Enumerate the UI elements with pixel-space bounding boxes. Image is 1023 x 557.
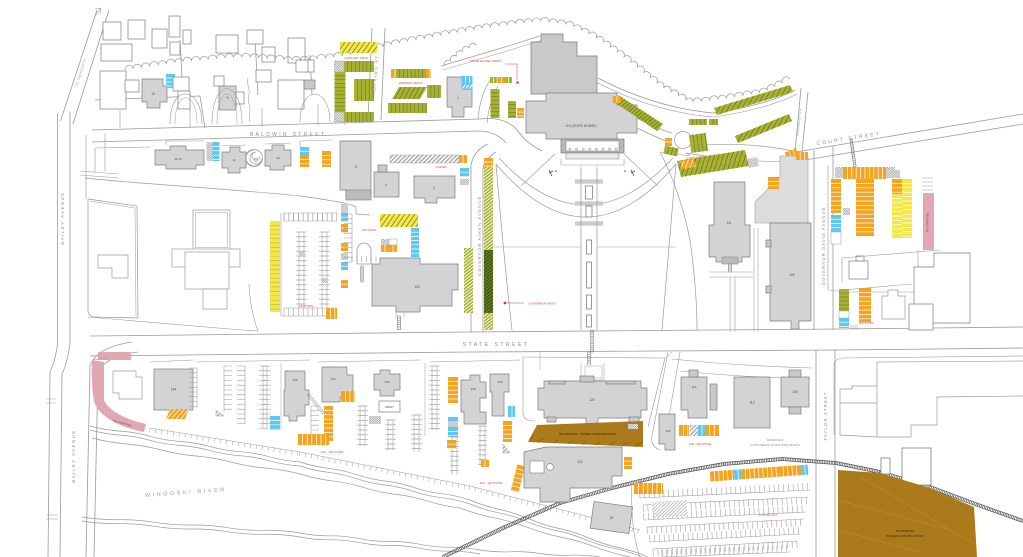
svg-text:CUSTOMERS ON BANK BUSINESS: CUSTOMERS ON BANK BUSINESS — [750, 443, 799, 447]
svg-text:120: 120 — [589, 398, 595, 402]
svg-text:9: 9 — [227, 96, 229, 100]
svg-text:STATE HOUSE "WEST": STATE HOUSE "WEST" — [470, 59, 502, 63]
svg-text:GOVERNOR AIKEN AVENUE: GOVERNOR AIKEN AVENUE — [477, 196, 482, 277]
svg-text:TAYLOR LOT: TAYLOR LOT — [759, 513, 777, 517]
svg-text:NO PARKING "UNDER CONSTRUCTION: NO PARKING "UNDER CONSTRUCTION" — [559, 432, 616, 436]
svg-text:115 (STATE HOUSE): 115 (STATE HOUSE) — [565, 124, 596, 128]
svg-text:18: 18 — [609, 516, 613, 521]
svg-text:118 - 116 STATE: 118 - 116 STATE — [689, 442, 711, 446]
svg-text:130: 130 — [792, 390, 798, 394]
svg-text:NO PARKING: NO PARKING — [926, 212, 930, 231]
svg-text:126 - 120 STATE: 126 - 120 STATE — [480, 481, 503, 485]
svg-text:2 AIKEN: 2 AIKEN — [435, 165, 446, 169]
svg-text:HOPKINS "EAST": HOPKINS "EAST" — [399, 81, 423, 85]
svg-text:116: 116 — [692, 385, 697, 389]
svg-text:TAYLOR STREET: TAYLOR STREET — [823, 391, 828, 440]
svg-text:122: 122 — [577, 460, 583, 464]
svg-text:105 STATE: 105 STATE — [858, 321, 873, 325]
svg-text:RESERVED: RESERVED — [767, 438, 784, 442]
svg-text:133: 133 — [414, 285, 420, 289]
svg-text:134: 134 — [330, 377, 335, 381]
svg-text:GOVERNOR AIKEN: GOVERNOR AIKEN — [528, 302, 555, 306]
svg-text:2: 2 — [433, 186, 435, 190]
svg-text:111: 111 — [727, 221, 732, 225]
svg-text:NO PARKING: NO PARKING — [896, 529, 915, 533]
svg-text:BALDWIN STREET: BALDWIN STREET — [250, 132, 326, 138]
svg-text:13: 13 — [151, 92, 155, 96]
svg-text:126: 126 — [497, 380, 502, 384]
svg-text:133 STATE: 133 STATE — [298, 304, 313, 308]
svg-text:19 15: 19 15 — [174, 157, 182, 161]
svg-text:144 - 132 STATE: 144 - 132 STATE — [321, 450, 344, 454]
svg-text:BAILEY AVENUE: BAILEY AVENUE — [60, 191, 65, 245]
svg-text:6: 6 — [355, 165, 357, 169]
svg-text:4: 4 — [385, 183, 387, 187]
svg-text:STATE STREET: STATE STREET — [463, 342, 530, 348]
svg-text:144: 144 — [171, 388, 177, 392]
svg-text:10: 10 — [276, 156, 280, 160]
svg-text:"UNDER CONSTRUCTION": "UNDER CONSTRUCTION" — [886, 534, 924, 538]
svg-text:MAINT: MAINT — [385, 405, 394, 409]
svg-text:118: 118 — [666, 429, 671, 433]
svg-text:BAILEY AVENUE: BAILEY AVENUE — [71, 429, 76, 483]
svg-text:133 STATE: 133 STATE — [361, 228, 376, 232]
svg-text:12: 12 — [232, 158, 236, 162]
svg-text:HOPKINS "WEST": HOPKINS "WEST" — [344, 56, 369, 60]
svg-text:112: 112 — [749, 401, 755, 405]
svg-text:136: 136 — [292, 378, 297, 382]
svg-text:132: 132 — [384, 380, 389, 384]
svg-text:GOVERNOR DAVIS AVENUE: GOVERNOR DAVIS AVENUE — [821, 207, 826, 286]
svg-text:109: 109 — [789, 273, 795, 277]
svg-text:1: 1 — [457, 96, 459, 100]
svg-text:128: 128 — [470, 387, 475, 391]
